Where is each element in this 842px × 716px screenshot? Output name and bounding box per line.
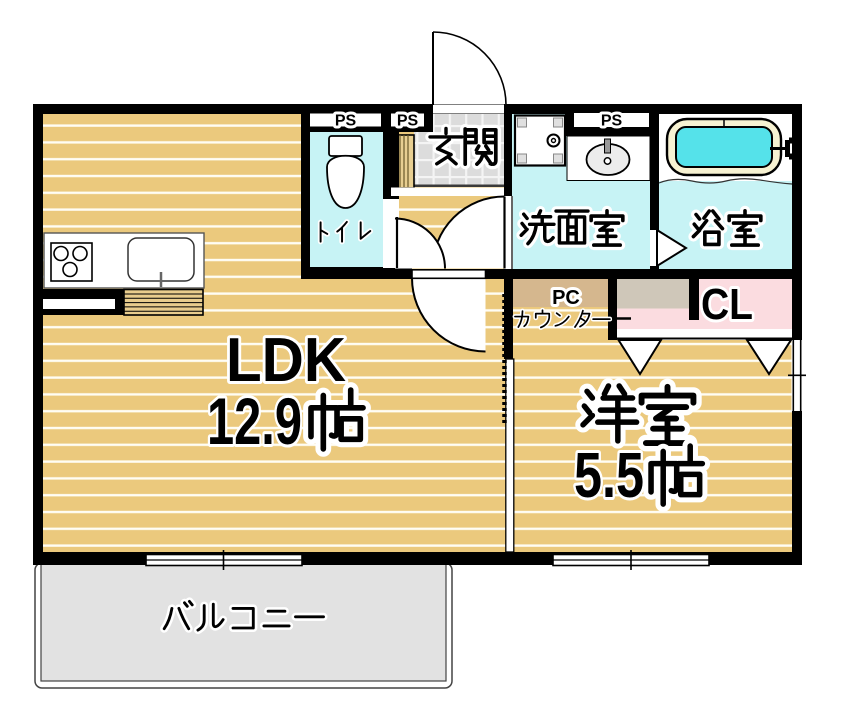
svg-text:CL: CL (701, 280, 753, 329)
svg-text:12.9: 12.9 (207, 384, 302, 458)
svg-text:PC: PC (552, 287, 580, 309)
svg-text:PS: PS (601, 113, 623, 130)
svg-text:PS: PS (335, 113, 357, 130)
svg-text:PS: PS (397, 113, 419, 130)
svg-text:5.5: 5.5 (574, 439, 644, 511)
